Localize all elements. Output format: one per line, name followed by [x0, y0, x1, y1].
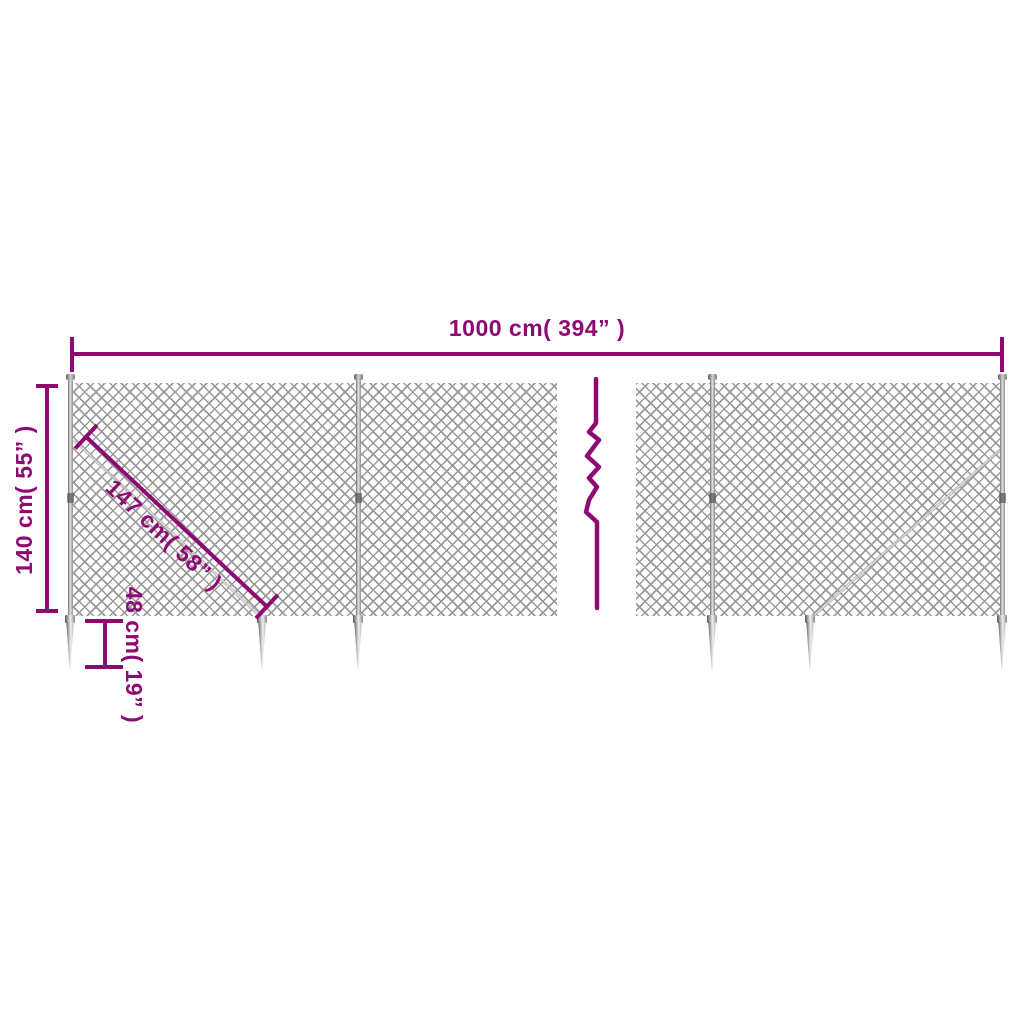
- spike-cone: [354, 622, 363, 672]
- spike-collar: [707, 615, 717, 623]
- height-dimension-label: 140 cm( 55” ): [10, 385, 38, 615]
- fence-dimension-diagram: 1000 cm( 394” ) 140 cm( 55” ): [0, 0, 1024, 1024]
- anchor-dimension-cap-top: [85, 619, 123, 623]
- spike-cone: [998, 622, 1007, 672]
- post-cap: [66, 374, 75, 380]
- post-wire-knot: [999, 493, 1006, 503]
- width-dimension-line: [73, 352, 1001, 356]
- post-wire-knot: [67, 493, 74, 503]
- width-dimension-cap-left: [70, 337, 74, 372]
- ground-spike: [352, 615, 364, 673]
- post-cap: [708, 374, 717, 380]
- anchor-dimension-label: 48 cm( 19” ): [120, 580, 148, 730]
- spike-collar: [353, 615, 363, 623]
- post-wire-knot: [355, 493, 362, 503]
- mesh-panel-right: [636, 383, 1004, 616]
- width-dimension-cap-right: [1000, 337, 1004, 372]
- ground-spike: [804, 615, 816, 673]
- height-dimension-cap-bottom: [36, 609, 58, 613]
- ground-spike: [256, 615, 268, 673]
- spike-cone: [708, 622, 717, 672]
- width-dimension-label: 1000 cm( 394” ): [287, 314, 787, 342]
- anchor-dimension-cap-bottom: [85, 665, 123, 669]
- anchor-dimension-line: [103, 621, 107, 668]
- spike-collar: [65, 615, 75, 623]
- post-cap: [998, 374, 1007, 380]
- ground-spike: [996, 615, 1008, 673]
- spike-collar: [997, 615, 1007, 623]
- ground-spike: [64, 615, 76, 673]
- spike-cone: [66, 622, 75, 672]
- post-cap: [354, 374, 363, 380]
- panel-break-squiggle: [580, 377, 614, 617]
- spike-cone: [806, 622, 815, 672]
- ground-spike: [706, 615, 718, 673]
- spike-collar: [805, 615, 815, 623]
- post-wire-knot: [709, 493, 716, 503]
- spike-cone: [258, 622, 267, 672]
- height-dimension-cap-top: [36, 384, 58, 388]
- height-dimension-line: [45, 386, 49, 612]
